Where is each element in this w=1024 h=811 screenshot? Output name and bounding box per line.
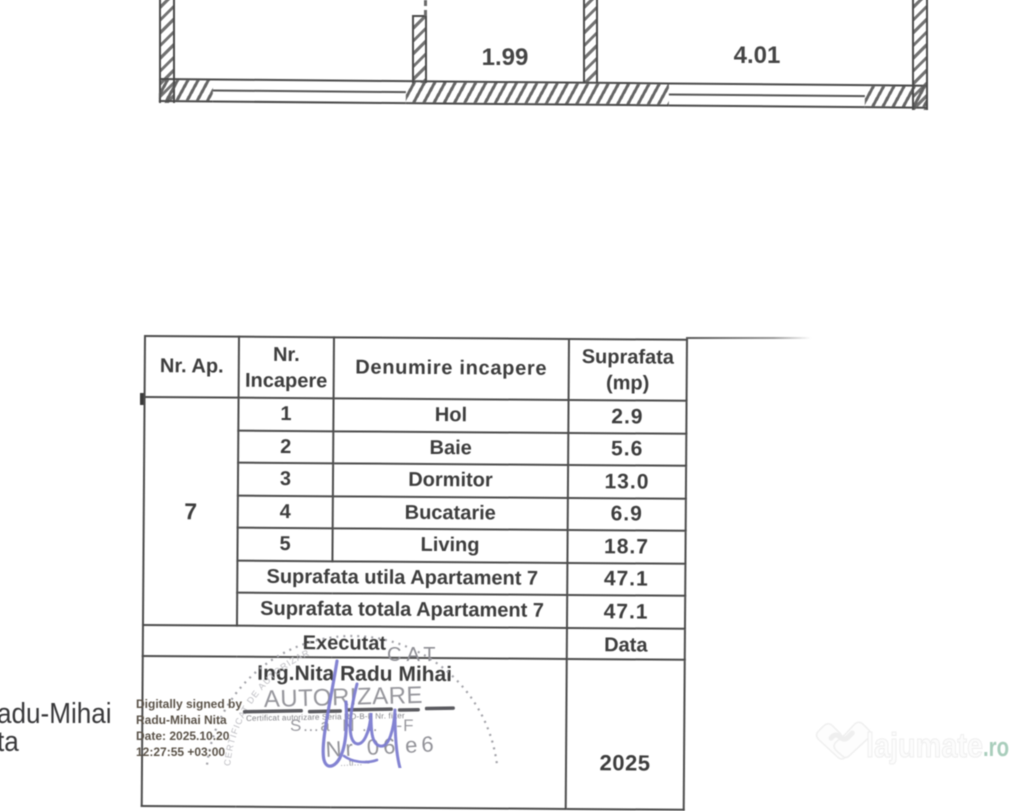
svg-text:.ro: .ro [983, 732, 1009, 762]
svg-text:CAT: CAT [387, 644, 441, 666]
svg-text:lajumate: lajumate [866, 727, 983, 765]
svg-text:CERTIFICAT DE AUTORIZARE: CERTIFICAT DE AUTORIZARE [0, 0, 311, 766]
